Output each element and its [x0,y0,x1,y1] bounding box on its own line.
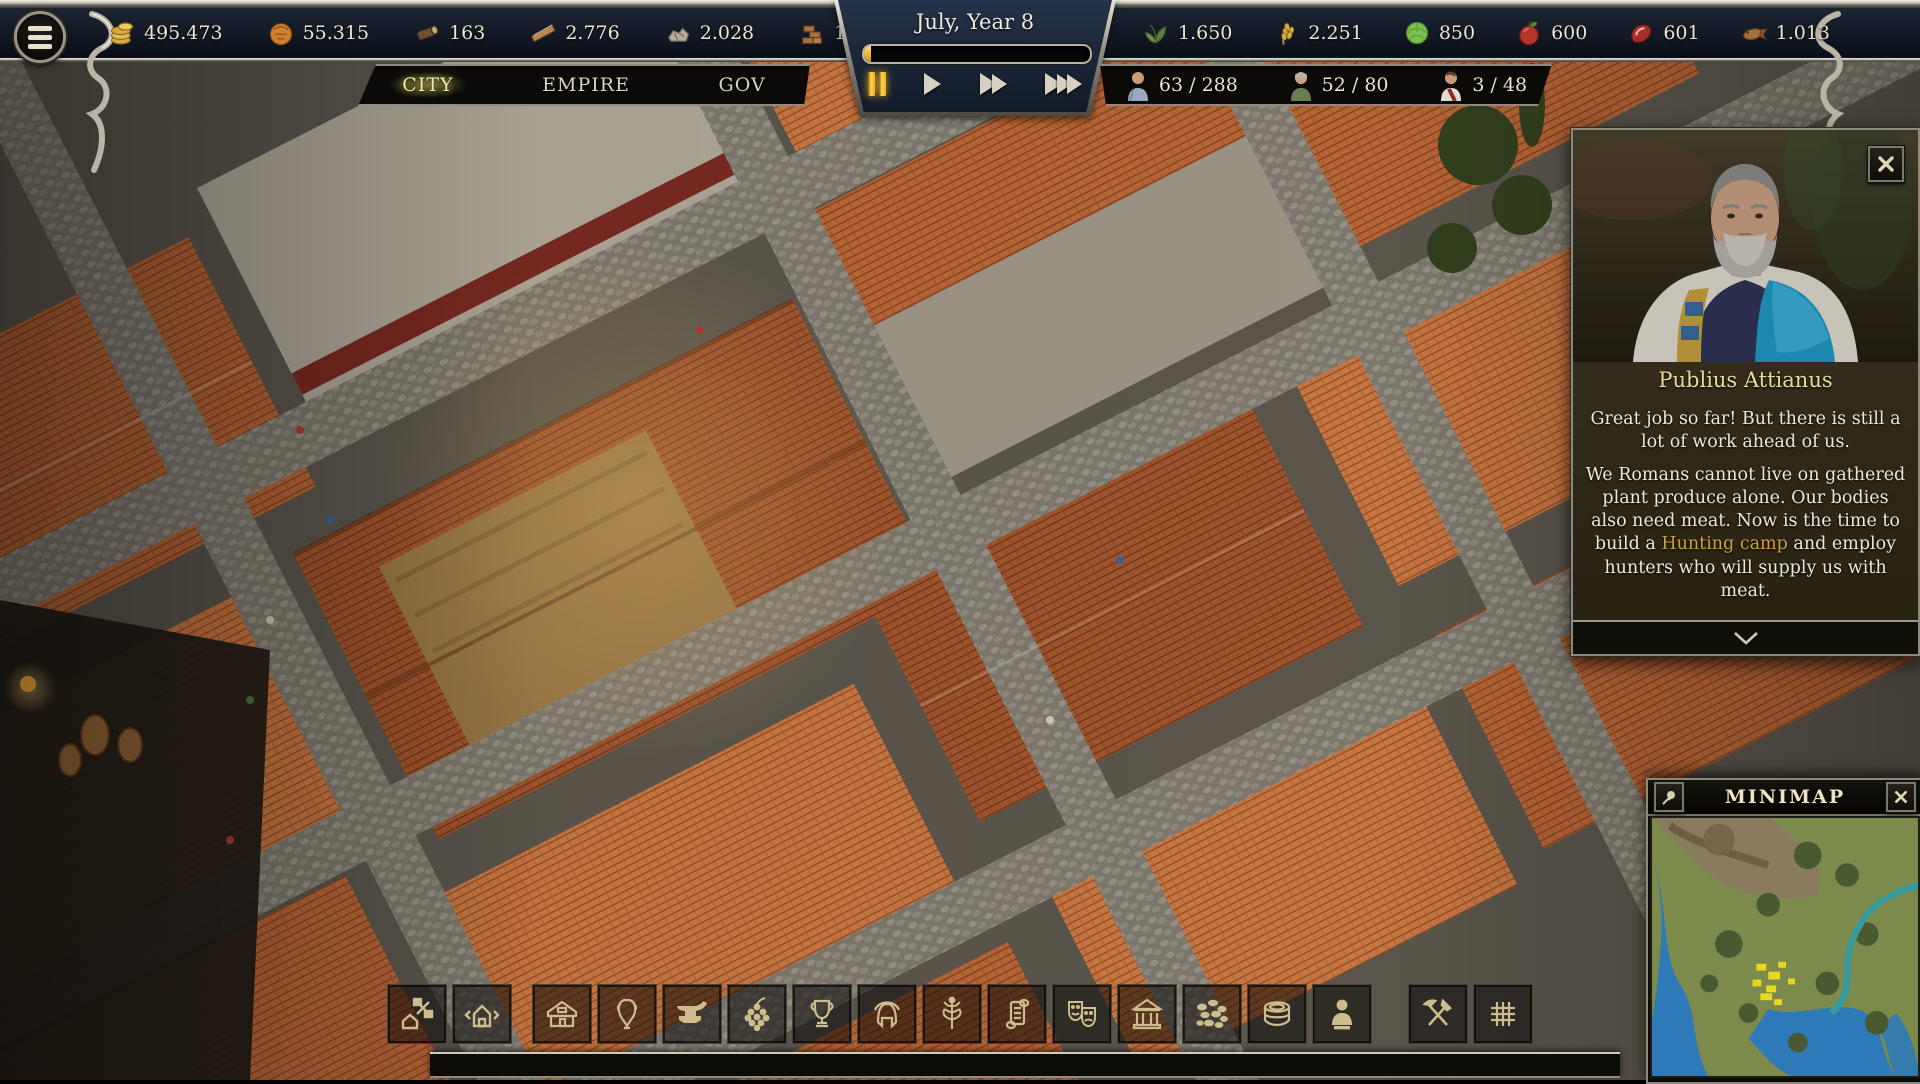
resource-value: 600 [1551,22,1587,44]
resource-value: 2.776 [565,22,619,44]
fastest-forward-button[interactable] [1045,73,1082,95]
elder-portrait [1288,69,1314,101]
population-value: 63 / 288 [1159,74,1238,96]
resource-meat[interactable]: 601 [1627,19,1699,47]
grapes-icon [737,994,777,1034]
anvil-icon [672,994,712,1034]
stone-icon [664,19,692,47]
coins-icon [108,19,136,47]
scroll-button[interactable] [987,984,1047,1044]
population-value: 52 / 80 [1322,74,1389,96]
resource-value: 601 [1663,22,1699,44]
chevron-down-icon[interactable] [1731,630,1761,646]
citizen-portrait [1125,69,1151,101]
well-icon [1257,994,1297,1034]
advisor-paragraph-2: We Romans cannot live on gathered plant … [1585,464,1906,603]
advisor-name: Publius Attianus [1573,368,1918,392]
helmet-button[interactable] [857,984,917,1044]
advisor-paragraph-1: Great job so far! But there is still a l… [1585,408,1906,454]
resource-herbs[interactable]: 1.650 [1142,19,1232,47]
fish-icon [1740,19,1768,47]
date-panel: July, Year 8 [834,0,1116,116]
minimap-title: MINIMAP [1725,786,1845,808]
theater-masks-button[interactable] [1052,984,1112,1044]
patrician-portrait [1438,69,1464,101]
trophy-icon [802,994,842,1034]
cabbage-icon [1403,19,1431,47]
grapes-button[interactable] [727,984,787,1044]
view-tabs: CITY EMPIRE GOV [358,64,810,106]
resource-value: 163 [449,22,485,44]
pin-icon [1661,789,1677,805]
resource-bread[interactable]: 55.315 [267,19,369,47]
resource-value: 850 [1439,22,1475,44]
minimap-close-button[interactable] [1886,782,1916,812]
wheat-icon [1272,19,1300,47]
resource-wheat[interactable]: 2.251 [1272,19,1362,47]
grid-button[interactable] [1473,984,1533,1044]
grid-icon [1483,994,1523,1034]
resource-fish[interactable]: 1.013 [1740,19,1830,47]
cobblestone-button[interactable] [1182,984,1242,1044]
population-elders[interactable]: 52 / 80 [1288,69,1389,101]
temple-icon [1127,994,1167,1034]
minimap-map[interactable] [1648,816,1920,1078]
demolish-button[interactable] [1408,984,1468,1044]
housing-button[interactable] [452,984,512,1044]
hunting-camp-link[interactable]: Hunting camp [1661,534,1788,554]
month-progress-bar [862,44,1092,64]
population-citizens[interactable]: 63 / 288 [1125,69,1238,101]
resources-right: 1.650 2.251 850 600 601 [1142,8,1830,58]
clay-bricks-icon [798,19,826,47]
tab-gov[interactable]: GOV [705,72,780,98]
build-toolbar [387,984,1533,1044]
resource-value: 1.013 [1776,22,1830,44]
tab-empire[interactable]: EMPIRE [528,72,644,98]
scroll-icon [997,994,1037,1034]
theater-masks-icon [1062,994,1102,1034]
resource-value: 55.315 [303,22,369,44]
resource-cabbage[interactable]: 850 [1403,19,1475,47]
pause-button[interactable] [868,72,886,96]
bottom-hud-bar [430,1052,1620,1078]
civic-building-button[interactable] [532,984,592,1044]
close-icon [1877,155,1895,173]
resource-plank[interactable]: 2.776 [529,19,619,47]
meat-icon [1627,19,1655,47]
herbs-icon [1142,19,1170,47]
close-icon [1894,790,1908,804]
game-date: July, Year 8 [834,10,1116,34]
advisor-dialogue: Great job so far! But there is still a l… [1585,398,1906,613]
minimap-panel: MINIMAP [1646,778,1920,1084]
anvil-button[interactable] [662,984,722,1044]
construction-icon [397,994,437,1034]
advisor-portrait [1573,130,1918,362]
advisor-panel-footer [1573,620,1918,654]
resources-left: 495.473 55.315 163 2.776 2.028 1.280 [108,8,889,58]
main-menu-button[interactable] [14,11,66,63]
advisor-close-button[interactable] [1868,146,1904,182]
pause-icon [868,72,875,96]
statue-icon [1322,994,1362,1034]
speed-controls [868,72,1082,96]
demolish-icon [1418,994,1458,1034]
resource-log[interactable]: 163 [413,19,485,47]
well-button[interactable] [1247,984,1307,1044]
bread-icon [267,19,295,47]
plank-icon [529,19,557,47]
hamburger-menu-icon [28,26,52,31]
cobblestone-icon [1192,994,1232,1034]
play-button[interactable] [924,73,941,95]
housing-icon [462,994,502,1034]
amphora-button[interactable] [597,984,657,1044]
tab-city[interactable]: CITY [388,72,467,98]
resource-coins[interactable]: 495.473 [108,19,223,47]
log-icon [413,19,441,47]
resource-value: 2.028 [700,22,754,44]
construction-button[interactable] [387,984,447,1044]
minimap-header: MINIMAP [1648,780,1920,816]
play-icon [924,73,941,95]
population-patricians[interactable]: 3 / 48 [1438,69,1527,101]
caduceus-icon [932,994,972,1034]
minimap-pin-button[interactable] [1654,782,1684,812]
trophy-button[interactable] [792,984,852,1044]
resource-apple[interactable]: 600 [1515,19,1587,47]
apple-icon [1515,19,1543,47]
game-screen: { "hud": { "menu": { "icon": "hamburger-… [0,0,1920,1080]
temple-button[interactable] [1117,984,1177,1044]
resource-value: 2.251 [1308,22,1362,44]
resource-stone[interactable]: 2.028 [664,19,754,47]
advisor-panel: Publius Attianus Great job so far! But t… [1571,128,1920,656]
caduceus-button[interactable] [922,984,982,1044]
amphora-icon [607,994,647,1034]
population-strip: 63 / 288 52 / 80 3 / 48 [1100,64,1552,106]
resource-value: 495.473 [144,22,223,44]
statue-button[interactable] [1312,984,1372,1044]
helmet-icon [867,994,907,1034]
civic-building-icon [542,994,582,1034]
population-value: 3 / 48 [1472,74,1527,96]
fast-forward-button[interactable] [980,73,1007,95]
resource-value: 1.650 [1178,22,1232,44]
month-progress-fill [864,46,871,62]
